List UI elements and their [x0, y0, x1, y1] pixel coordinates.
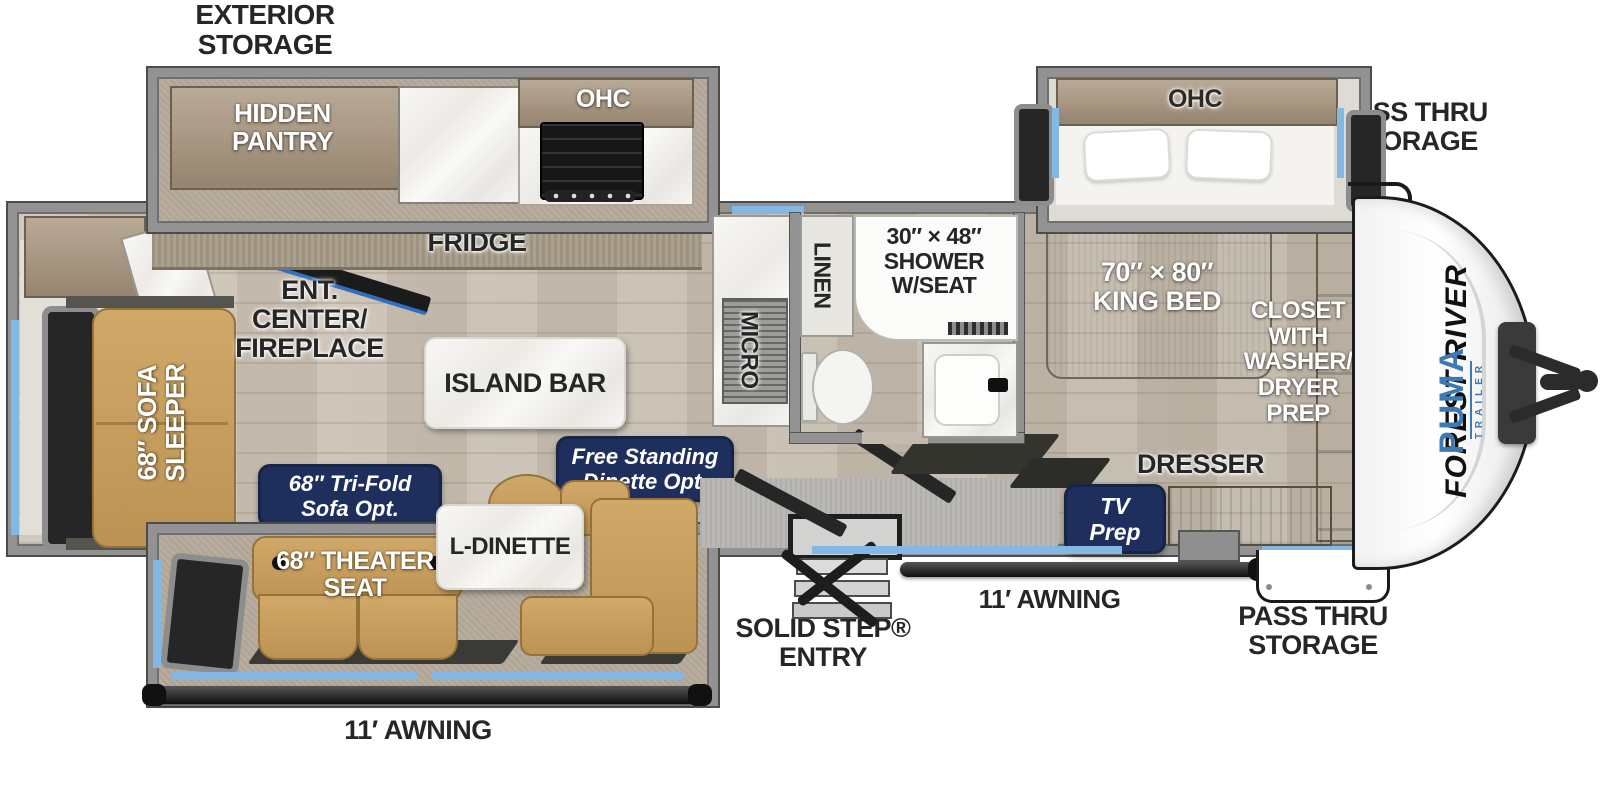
puma-logo-subtext: TRAILER — [1470, 361, 1485, 439]
stove-knobs — [544, 190, 636, 202]
bottom-wall-accent-1 — [812, 546, 1122, 554]
living-slide-accent-bottom1 — [172, 672, 417, 680]
hitch-coupler-ball — [1576, 370, 1598, 392]
closet-label: CLOSET WITH WASHER/ DRYER PREP — [1228, 298, 1368, 426]
tri-fold-sofa-option-chip: 68″ Tri-Fold Sofa Opt. — [258, 464, 442, 528]
bedroom-slide-accent-right — [1337, 108, 1344, 178]
solid-step-entry-label: SOLID STEP® ENTRY — [728, 614, 918, 672]
stove — [540, 122, 644, 200]
bedroom-slide-accent-left — [1052, 108, 1059, 178]
floorplan-canvas: EXTERIOR STORAGE PASS THRU STORAGE SOLID… — [0, 0, 1600, 805]
bath-left-wall — [790, 213, 800, 443]
shower-drain-mat — [948, 322, 1008, 335]
fridge-box — [398, 86, 520, 204]
living-slide-window — [160, 552, 250, 676]
rear-wall-accent — [11, 320, 19, 535]
tv-prep-label: TV Prep — [1089, 493, 1140, 546]
pillow-right — [1185, 129, 1273, 182]
living-slide-accent-left — [153, 560, 161, 668]
tv-prep-chip: TV Prep — [1064, 484, 1166, 554]
bedroom-slide-window-left — [1014, 104, 1054, 206]
vanity-faucet — [988, 378, 1008, 392]
awning-bar-left-cap2 — [688, 684, 712, 706]
pillow-left — [1083, 128, 1171, 182]
awning-bar-left-cap1 — [142, 684, 166, 706]
pass-thru-flap-screw-left — [1266, 584, 1272, 590]
awning-right-label: 11′ AWNING — [962, 586, 1137, 614]
dresser-label: DRESSER — [1128, 450, 1273, 479]
awning-left-label: 11′ AWNING — [328, 716, 508, 745]
theater-seat-cushion-right — [358, 594, 458, 660]
toilet-bowl — [812, 349, 874, 425]
sofa-sleeper-label: 68″ SOFA SLEEPER — [134, 308, 190, 538]
theater-seat-cushion-left — [258, 594, 358, 660]
living-slide-accent-bottom2 — [432, 672, 684, 680]
puma-logo-text: PUMA — [1435, 340, 1469, 460]
awning-bar-left — [152, 686, 700, 704]
l-dinette-table: L-DINETTE — [436, 504, 584, 590]
pass-thru-flap-screw-right — [1366, 584, 1372, 590]
exterior-storage-label: EXTERIOR STORAGE — [170, 0, 360, 60]
island-bar: ISLAND BAR — [424, 337, 626, 429]
theater-seat-label: 68″ THEATER SEAT — [248, 548, 462, 602]
fridge-label: FRIDGE — [412, 228, 542, 257]
bedroom-ohc-label: OHC — [1150, 86, 1240, 113]
l-dinette-label: L-DINETTE — [450, 534, 571, 560]
sofa-slide-rail-top — [66, 296, 234, 308]
kitchen-ohc-label: OHC — [558, 86, 648, 113]
awning-bar-right — [900, 562, 1258, 577]
linen-label: LINEN — [810, 222, 835, 328]
dinette-bench-seat — [520, 596, 654, 656]
micro-label: MICRO — [736, 300, 762, 400]
ent-center-fireplace-label: ENT. CENTER/ FIREPLACE — [222, 276, 397, 363]
pass-thru-storage-bottom-label: PASS THRU STORAGE — [1228, 602, 1398, 660]
shower-label: 30″ × 48″ SHOWER W/SEAT — [858, 224, 1010, 298]
hitch-jack — [1498, 322, 1536, 444]
hidden-pantry-label: HIDDEN PANTRY — [190, 100, 375, 156]
tri-fold-sofa-option-label: 68″ Tri-Fold Sofa Opt. — [289, 471, 412, 522]
bedroom-entry-step — [1178, 530, 1240, 562]
bath-door-gap — [862, 432, 928, 444]
island-bar-label: ISLAND BAR — [444, 369, 606, 398]
